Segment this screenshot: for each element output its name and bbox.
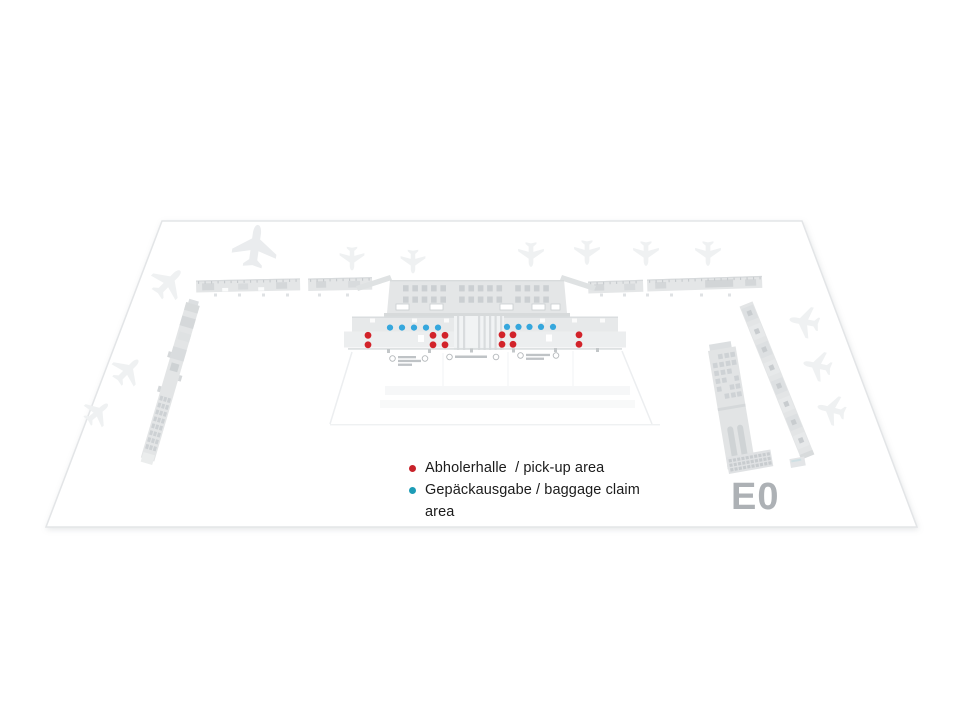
baggage-marker [387, 325, 393, 331]
baggage-marker [515, 324, 521, 330]
central-entrance-walkway [454, 316, 504, 350]
airport-map-page: Abholerhalle / pick-up area Gepäckausgab… [0, 0, 960, 720]
legend-label-pickup: Abholerhalle / pick-up area [425, 457, 604, 479]
pickup-dot-icon [409, 465, 416, 472]
baggage-marker [526, 324, 532, 330]
pickup-marker [510, 331, 517, 338]
baggage-marker [538, 324, 544, 330]
baggage-marker [504, 324, 510, 330]
terminal-rear-band [384, 313, 570, 317]
legend-item-pickup: Abholerhalle / pick-up area [409, 457, 659, 479]
pickup-marker [499, 341, 506, 348]
pickup-marker [365, 341, 372, 348]
pickup-marker [442, 332, 449, 339]
baggage-marker [399, 325, 405, 331]
pickup-marker [430, 332, 437, 339]
legend: Abholerhalle / pick-up area Gepäckausgab… [409, 457, 659, 523]
pickup-marker [576, 331, 583, 338]
legend-label-baggage: Gepäckausgabe / baggage claim area [425, 479, 640, 523]
baggage-marker [411, 325, 417, 331]
pickup-marker [430, 341, 437, 348]
baggage-marker [550, 324, 556, 330]
legend-item-baggage: Gepäckausgabe / baggage claim area [409, 479, 659, 523]
pickup-marker [576, 341, 583, 348]
baggage-marker [423, 325, 429, 331]
pickup-marker [510, 341, 517, 348]
concourse-strip-west-outer [196, 278, 300, 292]
level-label: E0 [731, 476, 779, 519]
pickup-marker [499, 331, 506, 338]
pickup-marker [365, 332, 372, 339]
pickup-marker [442, 341, 449, 348]
concourse-strip-east-inner [588, 280, 643, 294]
baggage-marker [435, 325, 441, 331]
terminal-map [0, 0, 960, 720]
baggage-dot-icon [409, 487, 416, 494]
